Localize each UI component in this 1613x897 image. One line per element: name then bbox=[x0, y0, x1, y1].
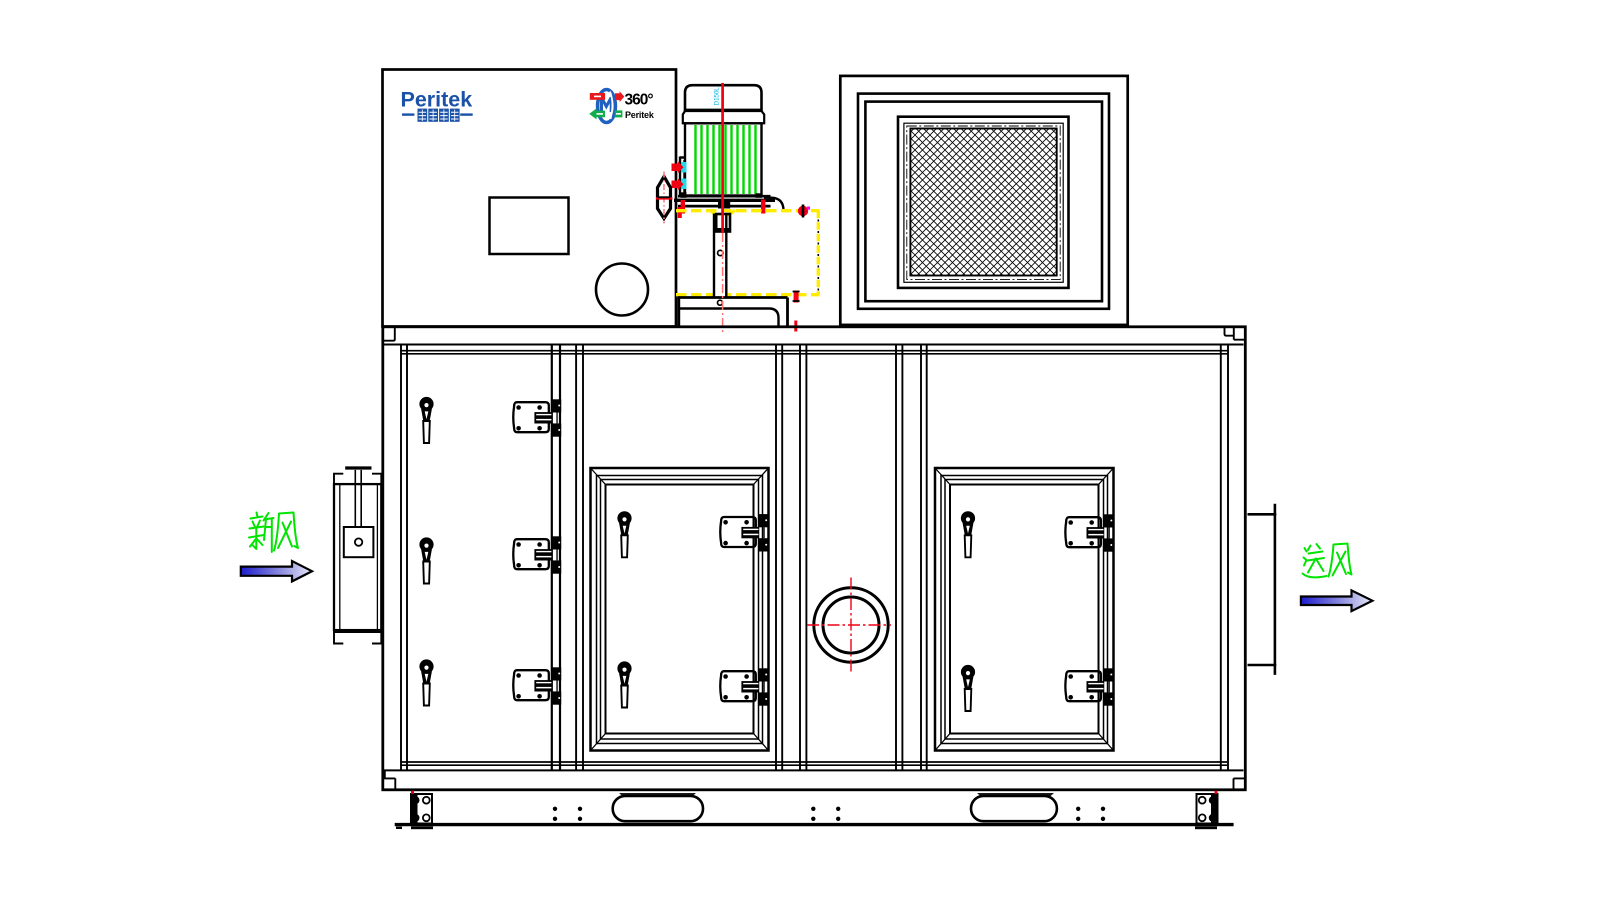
svg-text:D150L: D150L bbox=[714, 87, 721, 106]
svg-text:Peritek: Peritek bbox=[401, 88, 473, 112]
svg-text:Peritek: Peritek bbox=[625, 110, 655, 120]
svg-text:360°: 360° bbox=[625, 92, 654, 109]
